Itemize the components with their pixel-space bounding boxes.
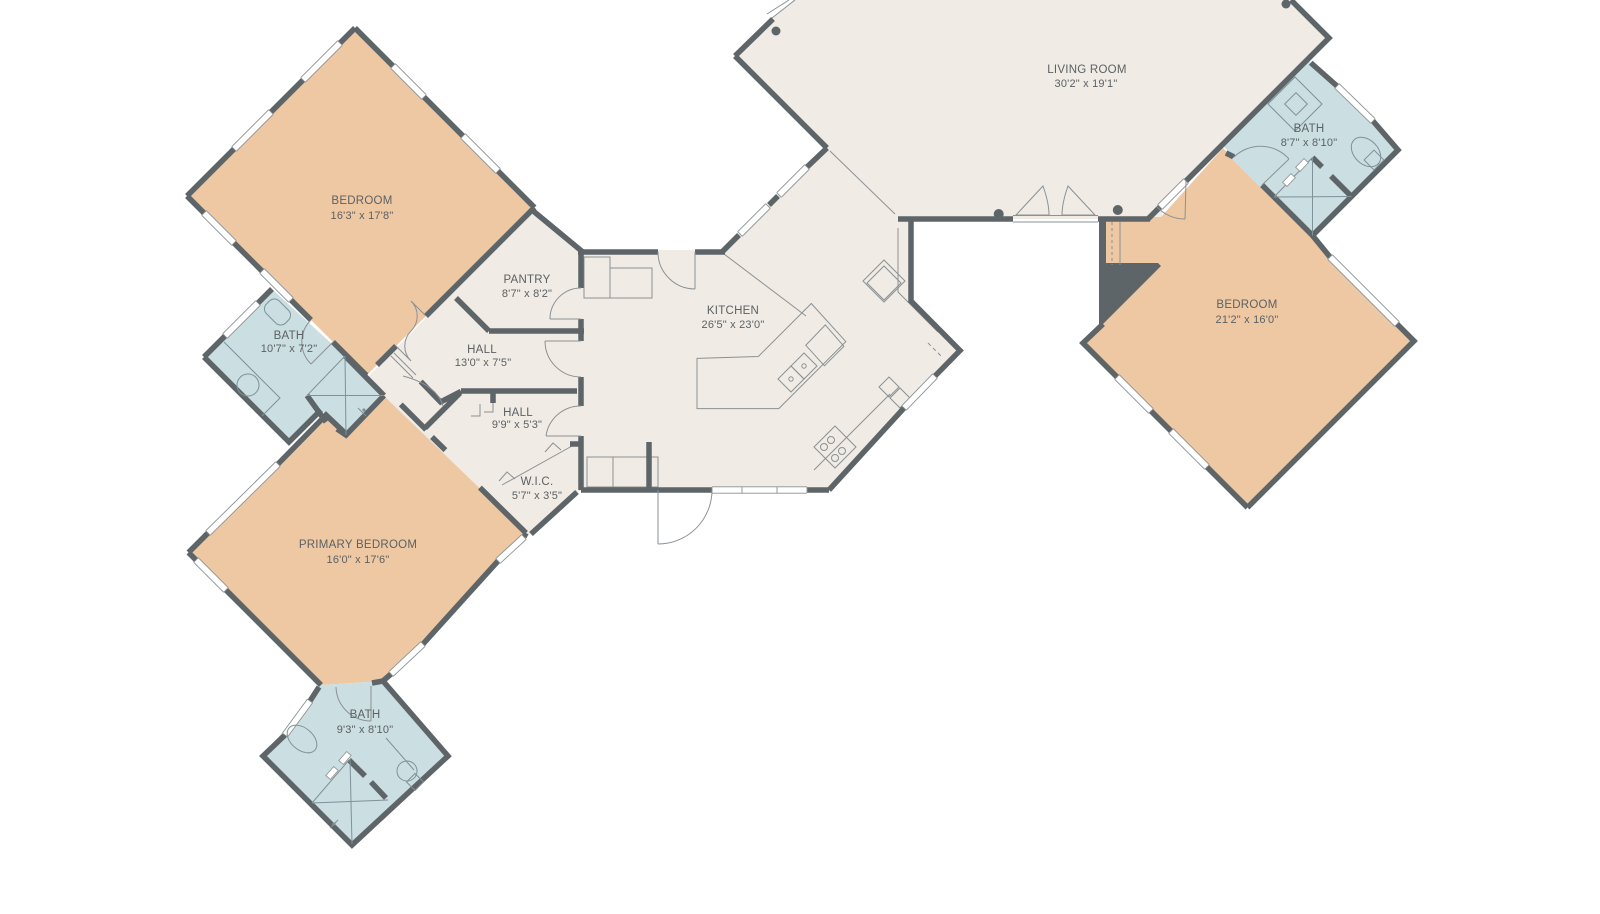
svg-text:LIVING ROOM: LIVING ROOM <box>1047 64 1126 76</box>
svg-text:16'0" x 17'6": 16'0" x 17'6" <box>327 554 390 566</box>
svg-text:13'0" x 7'5": 13'0" x 7'5" <box>455 357 512 369</box>
svg-text:BEDROOM: BEDROOM <box>1216 299 1277 311</box>
svg-text:16'3" x 17'8": 16'3" x 17'8" <box>331 210 394 222</box>
svg-text:BATH: BATH <box>1294 123 1325 135</box>
svg-text:9'3" x 8'10": 9'3" x 8'10" <box>337 724 394 736</box>
svg-text:KITCHEN: KITCHEN <box>707 305 759 317</box>
svg-text:BATH: BATH <box>350 709 381 721</box>
svg-text:HALL: HALL <box>467 344 497 356</box>
svg-text:26'5" x 23'0": 26'5" x 23'0" <box>702 319 765 331</box>
svg-text:HALL: HALL <box>503 407 533 419</box>
svg-text:9'9" x 5'3": 9'9" x 5'3" <box>492 419 542 431</box>
svg-text:30'2" x 19'1": 30'2" x 19'1" <box>1055 78 1118 90</box>
svg-text:8'7" x 8'10": 8'7" x 8'10" <box>1281 137 1338 149</box>
svg-text:BEDROOM: BEDROOM <box>331 195 392 207</box>
svg-text:W.I.C.: W.I.C. <box>521 476 554 488</box>
svg-text:10'7" x 7'2": 10'7" x 7'2" <box>261 343 318 355</box>
svg-text:BATH: BATH <box>274 330 305 342</box>
svg-text:PANTRY: PANTRY <box>503 274 550 286</box>
svg-text:21'2" x 16'0": 21'2" x 16'0" <box>1216 314 1279 326</box>
svg-text:PRIMARY BEDROOM: PRIMARY BEDROOM <box>299 539 417 551</box>
svg-text:8'7" x 8'2": 8'7" x 8'2" <box>502 288 552 300</box>
svg-text:5'7" x 3'5": 5'7" x 3'5" <box>512 490 562 502</box>
